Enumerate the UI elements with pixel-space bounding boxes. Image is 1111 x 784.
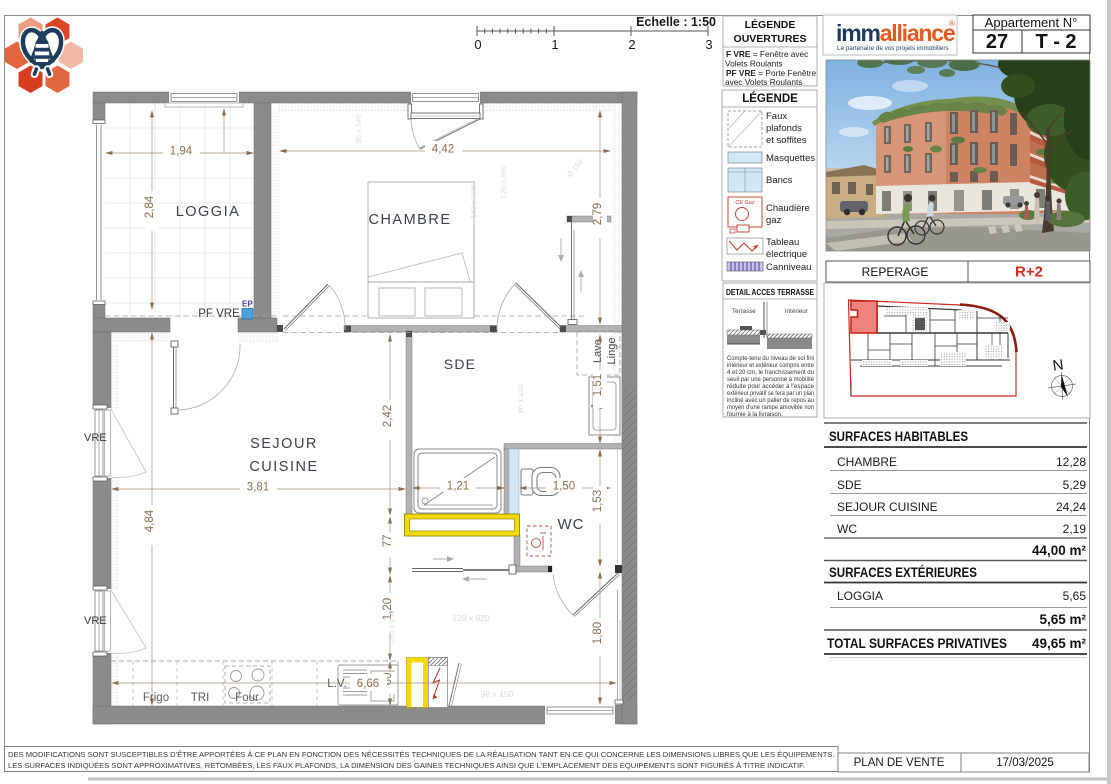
svg-text:Tableau: Tableau — [766, 237, 799, 248]
svg-text:et soffites: et soffites — [766, 135, 807, 146]
svg-text:Four: Four — [235, 692, 259, 704]
svg-text:CHAMBRE: CHAMBRE — [368, 212, 451, 228]
svg-text:F VRE = Fenêtre avec: F VRE = Fenêtre avec — [726, 49, 808, 59]
svg-text:120 x 920: 120 x 920 — [452, 613, 490, 623]
svg-text:4,42: 4,42 — [432, 144, 454, 156]
svg-text:Frigo: Frigo — [143, 692, 169, 704]
svg-text:LÉGENDE: LÉGENDE — [742, 92, 798, 105]
svg-text:DETAIL ACCES TERRASSE: DETAIL ACCES TERRASSE — [726, 287, 814, 297]
svg-text:CHAMBRE: CHAMBRE — [837, 455, 897, 469]
svg-text:VRE: VRE — [84, 615, 107, 627]
svg-text:0: 0 — [474, 37, 481, 52]
svg-text:6,66: 6,66 — [357, 678, 379, 690]
svg-text:R+2: R+2 — [1015, 264, 1043, 281]
svg-text:Bancs: Bancs — [766, 175, 793, 186]
svg-text:CUISINE: CUISINE — [249, 459, 318, 475]
svg-text:LÉGENDE: LÉGENDE — [745, 18, 796, 31]
svg-text:1,50: 1,50 — [553, 481, 575, 493]
svg-text:4,84: 4,84 — [144, 509, 156, 532]
svg-text:moyen d'une rampe amovible non: moyen d'une rampe amovible non — [727, 404, 814, 411]
svg-text:Lave: Lave — [592, 339, 604, 363]
svg-text:SDE: SDE — [837, 478, 862, 492]
svg-text:1,53: 1,53 — [592, 490, 604, 512]
svg-text:77: 77 — [382, 535, 394, 548]
svg-text:2: 2 — [628, 37, 635, 52]
svg-text:24,24: 24,24 — [1056, 500, 1086, 514]
svg-text:T - 2: T - 2 — [1035, 31, 1076, 53]
svg-text:2,84: 2,84 — [144, 195, 156, 218]
svg-text:Intérieur: Intérieur — [785, 308, 808, 315]
svg-text:seuil par une personne à mobil: seuil par une personne à mobilité — [727, 376, 815, 383]
svg-text:OUVERTURES: OUVERTURES — [734, 33, 807, 45]
svg-text:électrique: électrique — [766, 249, 807, 260]
svg-text:12,28: 12,28 — [1056, 455, 1086, 469]
svg-text:1,80: 1,80 — [592, 622, 604, 644]
svg-text:44,00 m²: 44,00 m² — [1032, 543, 1087, 558]
svg-text:90 x 140: 90 x 140 — [354, 115, 363, 144]
svg-text:Echelle : 1:50: Echelle : 1:50 — [636, 15, 716, 29]
svg-text:Linge: Linge — [606, 338, 618, 365]
svg-text:150 x 150: 150 x 150 — [387, 611, 396, 644]
svg-text:Canniveau: Canniveau — [766, 262, 811, 273]
svg-text:incliné avec un palier de repo: incliné avec un palier de repos au — [727, 397, 814, 404]
svg-text:LOGGIA: LOGGIA — [837, 589, 883, 603]
svg-text:PLAN DE VENTE: PLAN DE VENTE — [854, 757, 945, 769]
svg-text:5,65 m²: 5,65 m² — [1039, 612, 1086, 627]
svg-text:4 et 20 cm, le franchissement: 4 et 20 cm, le franchissement du — [727, 369, 814, 376]
svg-text:Masquettes: Masquettes — [766, 153, 815, 164]
svg-text:Faux: Faux — [766, 111, 787, 122]
svg-text:SEJOUR CUISINE: SEJOUR CUISINE — [837, 500, 938, 514]
svg-text:Compte-tenu du niveau de sol f: Compte-tenu du niveau de sol fini — [727, 355, 814, 362]
svg-text:intérieur et extérieur compris: intérieur et extérieur compris entre — [727, 362, 815, 369]
svg-text:1,21: 1,21 — [447, 481, 469, 493]
svg-text:plafonds: plafonds — [766, 123, 802, 134]
svg-text:REPERAGE: REPERAGE — [862, 265, 929, 279]
svg-text:2,79: 2,79 — [592, 203, 604, 225]
svg-text:fournie à la livraison.: fournie à la livraison. — [727, 411, 783, 418]
svg-text:SURFACES EXTÉRIEURES: SURFACES EXTÉRIEURES — [829, 565, 977, 580]
svg-text:Chaudière: Chaudière — [766, 203, 810, 214]
svg-text:LES SURFACES INDIQUÉES SONT AP: LES SURFACES INDIQUÉES SONT APPROXIMATIV… — [8, 761, 805, 770]
svg-text:3: 3 — [705, 37, 712, 52]
svg-text:SEJOUR: SEJOUR — [250, 436, 318, 452]
svg-text:®: ® — [949, 19, 955, 28]
svg-text:5,29: 5,29 — [1063, 478, 1087, 492]
svg-text:TOTAL SURFACES PRIVATIVES: TOTAL SURFACES PRIVATIVES — [827, 636, 1007, 651]
svg-text:extérieur privatif se fera par: extérieur privatif se fera par un plan — [727, 390, 814, 397]
svg-text:SURFACES HABITABLES: SURFACES HABITABLES — [829, 429, 968, 444]
svg-text:L.V.: L.V. — [327, 678, 346, 690]
svg-text:2,42: 2,42 — [382, 405, 394, 427]
svg-text:Volets Roulants: Volets Roulants — [725, 59, 783, 69]
svg-text:EP: EP — [242, 300, 253, 309]
svg-text:17/03/2025: 17/03/2025 — [996, 757, 1054, 769]
svg-text:1,51: 1,51 — [592, 374, 604, 396]
svg-text:PF VRE: PF VRE — [198, 308, 240, 320]
svg-text:140 x 190: 140 x 190 — [469, 186, 478, 219]
svg-text:LOGGIA: LOGGIA — [176, 204, 241, 220]
svg-text:immalliance: immalliance — [836, 20, 955, 46]
svg-text:120 x 990: 120 x 990 — [499, 166, 508, 199]
svg-text:VRE: VRE — [84, 432, 107, 444]
svg-text:1: 1 — [551, 37, 558, 52]
svg-text:80 x 130: 80 x 130 — [516, 385, 525, 414]
svg-text:Appartement N°: Appartement N° — [985, 15, 1078, 30]
svg-text:réduite pour accéder à l'espac: réduite pour accéder à l'espace — [727, 383, 815, 390]
svg-text:Terrasse: Terrasse — [732, 308, 756, 315]
svg-text:SDE: SDE — [444, 356, 476, 372]
svg-text:3,81: 3,81 — [247, 482, 269, 494]
svg-text:49,65 m²: 49,65 m² — [1032, 636, 1087, 651]
svg-text:27: 27 — [986, 31, 1008, 53]
svg-text:WC: WC — [837, 522, 857, 536]
svg-text:Le partenaire de vos projets i: Le partenaire de vos projets immobiliers — [837, 45, 949, 52]
svg-text:WC: WC — [558, 516, 585, 533]
svg-text:gaz: gaz — [766, 215, 782, 226]
svg-text:98 x 150: 98 x 150 — [481, 689, 514, 699]
svg-text:5,65: 5,65 — [1063, 589, 1087, 603]
svg-text:avec Volets Roulants: avec Volets Roulants — [725, 77, 802, 87]
svg-text:DES MODIFICATIONS SONT SUSCEPT: DES MODIFICATIONS SONT SUSCEPTIBLES D'ÊT… — [8, 750, 835, 759]
svg-text:CE Gaz: CE Gaz — [735, 200, 755, 206]
svg-text:1,94: 1,94 — [170, 146, 193, 158]
svg-text:2,19: 2,19 — [1063, 522, 1087, 536]
svg-text:TRI: TRI — [191, 692, 210, 704]
